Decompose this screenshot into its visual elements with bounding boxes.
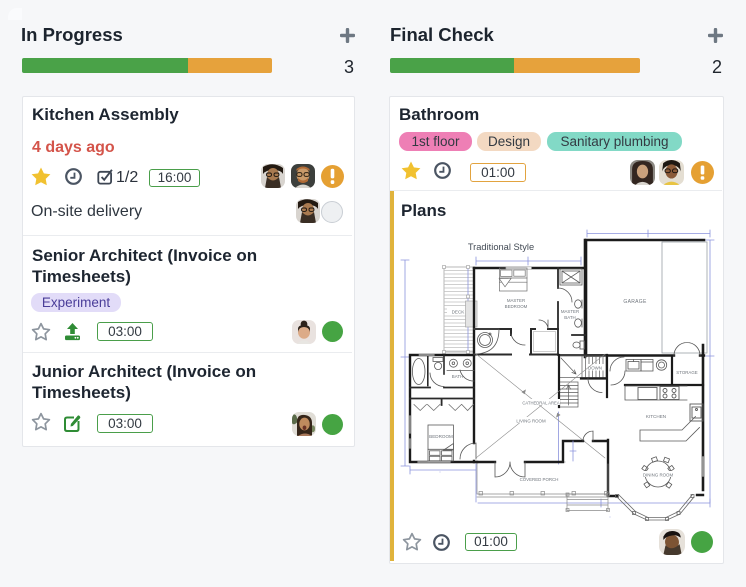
svg-text:COVERED PORCH: COVERED PORCH bbox=[520, 477, 559, 482]
svg-text:BEDROOM: BEDROOM bbox=[429, 434, 453, 439]
svg-text:BATH: BATH bbox=[564, 315, 575, 320]
svg-text:LIVING ROOM: LIVING ROOM bbox=[516, 419, 546, 424]
svg-text:GARAGE: GARAGE bbox=[623, 299, 647, 305]
svg-text:MASTER: MASTER bbox=[561, 309, 579, 314]
svg-text:BATH: BATH bbox=[452, 374, 463, 379]
svg-text:CATHEDRAL AREA: CATHEDRAL AREA bbox=[522, 401, 559, 406]
svg-text:KITCHEN: KITCHEN bbox=[646, 414, 666, 419]
svg-text:STORAGE: STORAGE bbox=[676, 370, 697, 375]
svg-text:BEDROOM: BEDROOM bbox=[505, 304, 528, 309]
svg-text:DINING ROOM: DINING ROOM bbox=[643, 473, 674, 478]
svg-text:Traditional Style: Traditional Style bbox=[468, 242, 534, 252]
svg-text:DECK: DECK bbox=[452, 310, 466, 315]
svg-text:MASTER: MASTER bbox=[507, 298, 525, 303]
